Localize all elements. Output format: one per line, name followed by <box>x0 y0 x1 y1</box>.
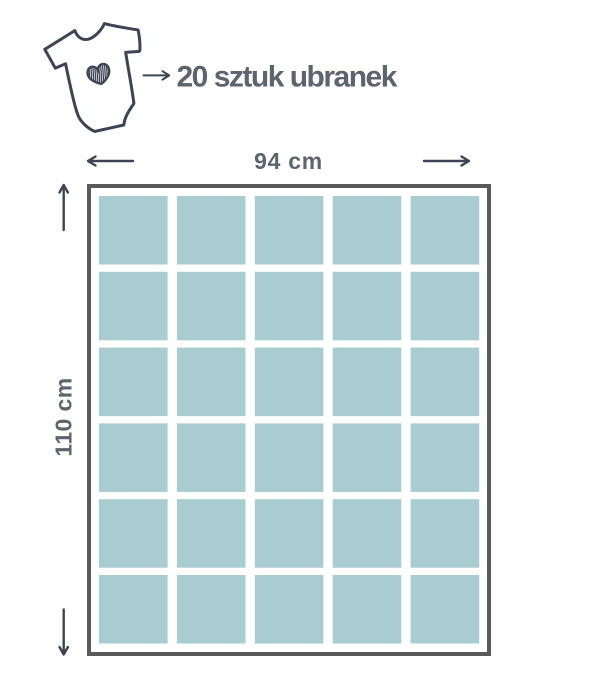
svg-text:20 sztuk ubranek: 20 sztuk ubranek <box>177 61 398 94</box>
svg-text:110 cm: 110 cm <box>51 377 77 456</box>
svg-text:94 cm: 94 cm <box>254 148 323 174</box>
